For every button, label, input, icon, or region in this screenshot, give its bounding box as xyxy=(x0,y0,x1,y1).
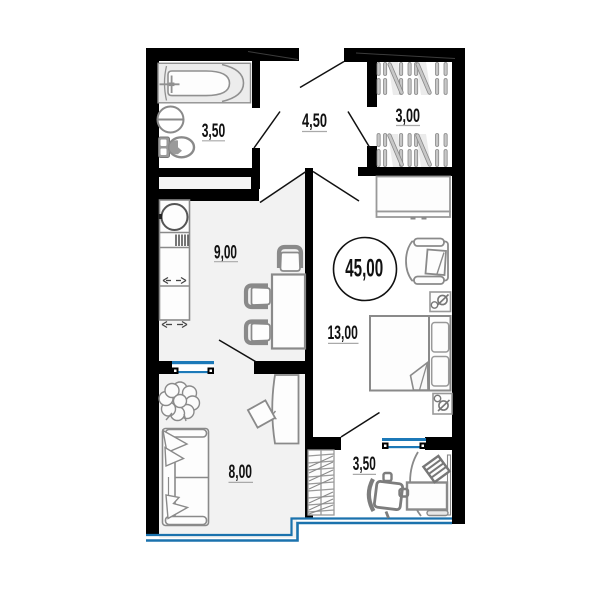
svg-text:8,00: 8,00 xyxy=(229,462,253,483)
svg-text:3,50: 3,50 xyxy=(353,454,376,475)
svg-text:45,00: 45,00 xyxy=(345,254,383,282)
svg-text:13,00: 13,00 xyxy=(328,323,358,344)
svg-text:3,00: 3,00 xyxy=(396,106,421,127)
svg-text:9,00: 9,00 xyxy=(214,242,237,263)
svg-text:4,50: 4,50 xyxy=(302,111,327,132)
svg-text:3,50: 3,50 xyxy=(202,121,226,142)
